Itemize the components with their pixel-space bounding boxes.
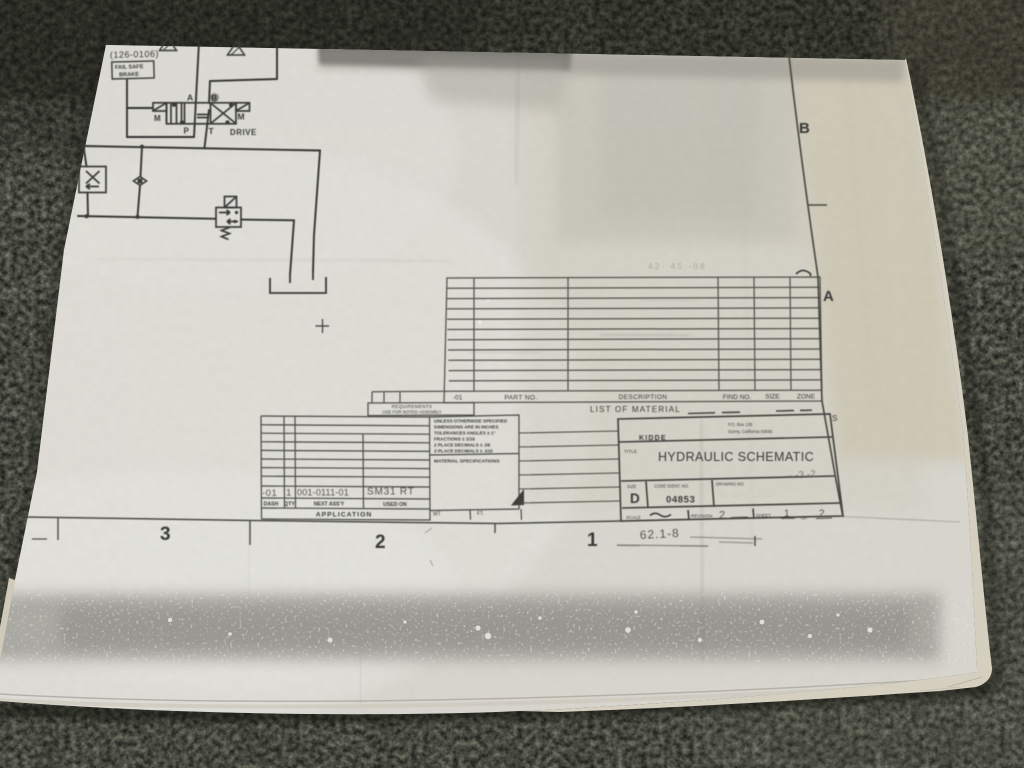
- svg-text:TOLERANCES ANGLES ± 1°: TOLERANCES ANGLES ± 1°: [434, 431, 495, 436]
- svg-text:2: 2: [375, 532, 386, 553]
- svg-text:42- 45 -08: 42- 45 -08: [648, 261, 707, 271]
- svg-text:M: M: [154, 114, 161, 123]
- svg-text:·· ·· · ·· ··: ·· ·· · ·· ··: [722, 494, 773, 500]
- svg-text:FIND NO.: FIND NO.: [723, 394, 752, 401]
- svg-text:REQUIREMENTS: REQUIREMENTS: [392, 404, 433, 409]
- svg-text:TITLE: TITLE: [624, 449, 637, 455]
- svg-text:04853: 04853: [666, 495, 695, 506]
- svg-text:s: s: [832, 412, 838, 424]
- svg-text:DESCRIPTION: DESCRIPTION: [619, 394, 668, 401]
- svg-text:B: B: [799, 120, 810, 137]
- svg-text:APPLICATION: APPLICATION: [316, 512, 373, 519]
- svg-text:62.1-8: 62.1-8: [639, 526, 680, 542]
- svg-text:T: T: [209, 126, 215, 136]
- svg-text:DASH: DASH: [264, 502, 279, 508]
- svg-text:SHEET: SHEET: [756, 513, 771, 518]
- svg-text:WT: WT: [433, 512, 441, 518]
- svg-text:FT.: FT.: [477, 511, 484, 517]
- svg-text:A: A: [823, 288, 834, 305]
- svg-text:QTY: QTY: [284, 501, 295, 507]
- svg-text:SIZE: SIZE: [765, 394, 780, 401]
- svg-text:A: A: [187, 93, 193, 103]
- svg-text:1: 1: [286, 488, 291, 499]
- svg-text:3: 3: [160, 524, 171, 545]
- svg-text:LIST OF MATERIAL: LIST OF MATERIAL: [590, 405, 681, 414]
- svg-text:DIMENSIONS ARE IN INCHES: DIMENSIONS ARE IN INCHES: [434, 425, 498, 430]
- svg-text:NEXT ASS'Y: NEXT ASS'Y: [314, 501, 345, 507]
- svg-text:·· -3 -2: ·· -3 -2: [785, 469, 816, 482]
- svg-text:2: 2: [719, 510, 725, 522]
- svg-text:REVISION: REVISION: [691, 514, 713, 519]
- svg-text:D: D: [630, 491, 640, 506]
- svg-text:UNLESS OTHERWISE SPECIFIED: UNLESS OTHERWISE SPECIFIED: [434, 419, 508, 424]
- svg-text:CODE IDENT. NO.: CODE IDENT. NO.: [654, 484, 689, 489]
- svg-text:BRAKE: BRAKE: [119, 72, 139, 79]
- svg-text:3 PLACE DECIMALS ± .010: 3 PLACE DECIMALS ± .010: [434, 449, 493, 454]
- svg-text:SCALE: SCALE: [626, 515, 641, 520]
- svg-text:B: B: [211, 93, 217, 103]
- svg-text:(126-0106): (126-0106): [110, 49, 159, 60]
- svg-text:2 PLACE DECIMALS ± .06: 2 PLACE DECIMALS ± .06: [434, 443, 491, 448]
- svg-text:Sunny, California 93065: Sunny, California 93065: [728, 429, 773, 434]
- svg-text:P: P: [184, 127, 190, 136]
- svg-text:FAIL SAFE: FAIL SAFE: [115, 64, 144, 71]
- svg-text:1: 1: [587, 530, 598, 551]
- svg-text:DRIVE: DRIVE: [230, 128, 257, 137]
- svg-text:001-0111-01: 001-0111-01: [297, 488, 349, 498]
- svg-text:KIDDE: KIDDE: [639, 435, 667, 442]
- svg-text:FRACTIONS ± 1/16: FRACTIONS ± 1/16: [434, 437, 475, 442]
- svg-text:M: M: [238, 112, 245, 122]
- svg-text:DRAWING NO.: DRAWING NO.: [716, 482, 745, 487]
- svg-text:-01: -01: [262, 488, 277, 499]
- svg-text:HYDRAULIC SCHEMATIC: HYDRAULIC SCHEMATIC: [658, 450, 814, 464]
- svg-text:P.O. Box 135: P.O. Box 135: [728, 422, 753, 427]
- svg-text:MATERIAL SPECIFICATIONS: MATERIAL SPECIFICATIONS: [434, 459, 500, 465]
- svg-text:-01: -01: [453, 395, 463, 402]
- svg-text:SM31 RT: SM31 RT: [367, 487, 415, 498]
- svg-text:USED ON: USED ON: [383, 502, 407, 508]
- svg-text:USE FOR NOTED ASSEMBLY: USE FOR NOTED ASSEMBLY: [382, 410, 441, 415]
- svg-text:PART NO.: PART NO.: [504, 394, 537, 401]
- svg-text:OF: OF: [801, 516, 808, 521]
- svg-text:SIZE: SIZE: [627, 484, 637, 489]
- svg-text:ZONE: ZONE: [797, 394, 816, 401]
